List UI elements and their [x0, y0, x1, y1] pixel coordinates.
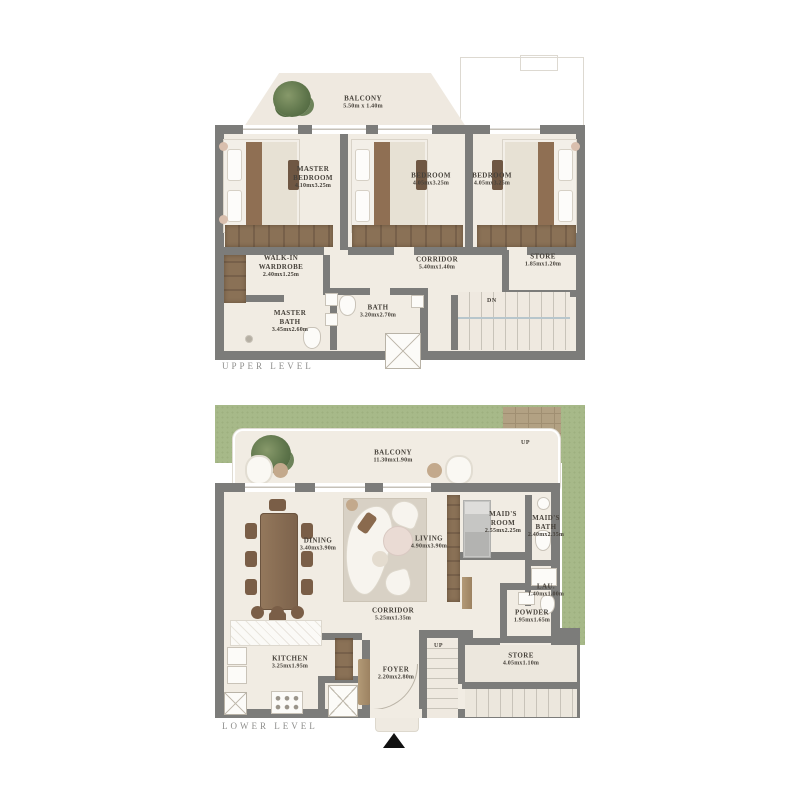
wall — [427, 630, 473, 638]
room-label-walk-in-wardrobe: WALK-IN WARDROBE 2.40mx1.25m — [250, 254, 312, 280]
wall — [414, 247, 473, 255]
wall — [465, 134, 473, 250]
window — [378, 125, 432, 134]
sink-icon — [325, 293, 338, 306]
dining-chair — [269, 499, 286, 511]
shower-icon — [385, 333, 421, 369]
stairs-up-inner — [427, 640, 458, 718]
shower-drain-icon — [245, 335, 253, 343]
pantry-cabinet — [335, 638, 353, 680]
dining-chair — [301, 579, 313, 595]
entry-opening — [370, 709, 422, 718]
roof-outline-notch — [520, 55, 558, 71]
room-label-foyer: FOYER 2.20mx2.80m — [370, 666, 422, 683]
sink-icon — [537, 497, 550, 510]
window — [383, 483, 431, 492]
room-label-upper-balcony: BALCONY 5.50m x 1.40m — [328, 95, 398, 112]
wall — [340, 134, 348, 250]
room-label-kitchen: KITCHEN 3.25mx1.95m — [262, 655, 318, 672]
garden-stairs-up-label: UP — [521, 440, 530, 446]
plant-icon — [273, 81, 311, 117]
side-table — [273, 463, 288, 478]
pillow — [558, 190, 573, 222]
lounge-chair-icon — [445, 455, 473, 485]
coffee-table — [372, 551, 388, 567]
wardrobe — [225, 225, 333, 247]
pillow — [558, 149, 573, 181]
foyer-cabinet — [358, 659, 370, 705]
wall — [451, 295, 458, 350]
sink-icon — [411, 295, 424, 308]
stairs-down — [458, 292, 570, 350]
wall — [502, 250, 509, 295]
window — [245, 483, 295, 492]
stool — [271, 606, 284, 619]
side-table — [219, 142, 228, 151]
upper-level-plan: BALCONY 5.50m x 1.40m — [215, 55, 585, 390]
room-label-lower-store: STORE 4.05mx1.10m — [491, 652, 551, 669]
room-label-master-bedroom: MASTER BEDROOM 4.10mx3.25m — [286, 165, 340, 191]
room-label-upper-corridor: CORRIDOR 5.40mx1.40m — [407, 256, 467, 273]
wardrobe — [477, 225, 576, 247]
room-label-lower-balcony: BALCONY 11.30mx1.90m — [353, 449, 433, 466]
room-label-bedroom-3: BEDROOM 4.05mx3.25m — [468, 172, 516, 189]
room-label-master-bath: MASTER BATH 3.45mx2.60m — [267, 309, 313, 335]
room-label-lower-corridor: CORRIDOR 5.25mx1.35m — [363, 607, 423, 624]
stool — [346, 499, 358, 511]
partition-cabinet — [462, 577, 472, 609]
wall — [458, 638, 465, 684]
stair-handrail — [458, 317, 570, 319]
dining-chair — [245, 579, 257, 595]
room-label-powder: POWDER 1.95mx1.65m — [507, 609, 557, 626]
side-table — [219, 215, 228, 224]
floorplan-page: { "colors": { "wall": "#7c7c7a", "floor"… — [0, 0, 800, 800]
kitchen-island — [230, 620, 322, 646]
wall — [323, 255, 330, 295]
side-table — [571, 142, 580, 151]
window — [490, 125, 540, 134]
room-label-dining: DINING 3.40mx3.90m — [290, 537, 346, 554]
stool — [251, 606, 264, 619]
shower-icon — [328, 685, 358, 717]
room-label-maids-room: MAID'S ROOM 2.55mx2.25m — [481, 510, 525, 536]
wall — [465, 638, 500, 645]
entry-step — [375, 718, 419, 732]
stairs-down-label: DN — [487, 298, 497, 304]
wall — [500, 583, 507, 643]
pillow — [227, 190, 242, 222]
lounge-chair-icon — [245, 455, 273, 485]
wall — [500, 636, 560, 643]
lower-level-plan: UP BALCONY 11.30mx1.90m — [215, 405, 585, 755]
wardrobe — [352, 225, 463, 247]
wall — [462, 682, 580, 689]
sink-icon — [325, 313, 338, 326]
stairs-lower-run — [465, 689, 577, 717]
stove-icon — [271, 691, 303, 714]
room-label-living: LIVING 4.90mx3.90m — [403, 535, 455, 552]
room-label-laundry: LAU. 1.40mx1.00m — [525, 583, 567, 600]
entry-arrow-icon — [383, 733, 405, 748]
upper-level-label: UPPER LEVEL — [222, 361, 314, 371]
appliance-icon — [227, 647, 247, 665]
wall — [348, 247, 394, 255]
dining-table — [260, 513, 298, 610]
room-label-bedroom-2: BEDROOM 4.05mx3.25m — [407, 172, 455, 189]
dining-chair — [245, 551, 257, 567]
lower-level-label: LOWER LEVEL — [222, 721, 318, 731]
pillow — [355, 149, 370, 181]
window — [315, 483, 365, 492]
stairs-up-inner-label: UP — [434, 643, 443, 649]
pillow — [355, 190, 370, 222]
pillow — [227, 149, 242, 181]
dining-chair — [245, 523, 257, 539]
walk-in-wardrobe-unit — [224, 255, 246, 303]
appliance-icon — [227, 666, 247, 684]
room-label-bath: BATH 3.20mx2.70m — [351, 304, 405, 321]
room-label-maids-bath: MAID'S BATH 2.40mx2.35m — [526, 514, 566, 540]
window — [312, 125, 366, 134]
window — [243, 125, 298, 134]
room-label-upper-store: STORE 1.85mx1.20m — [516, 253, 570, 270]
utility-box — [224, 692, 247, 715]
stool — [291, 606, 304, 619]
